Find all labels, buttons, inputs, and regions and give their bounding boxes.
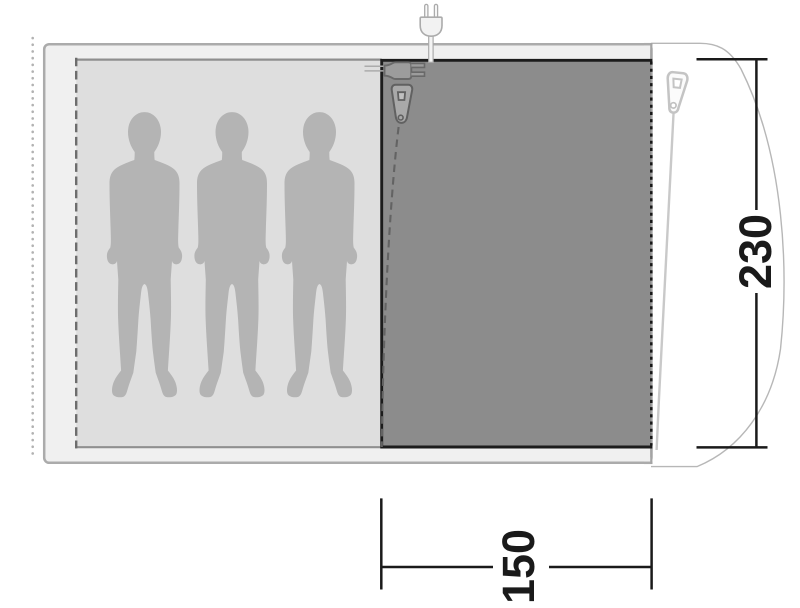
svg-text:150: 150 [493,529,544,604]
svg-text:230: 230 [730,214,781,289]
